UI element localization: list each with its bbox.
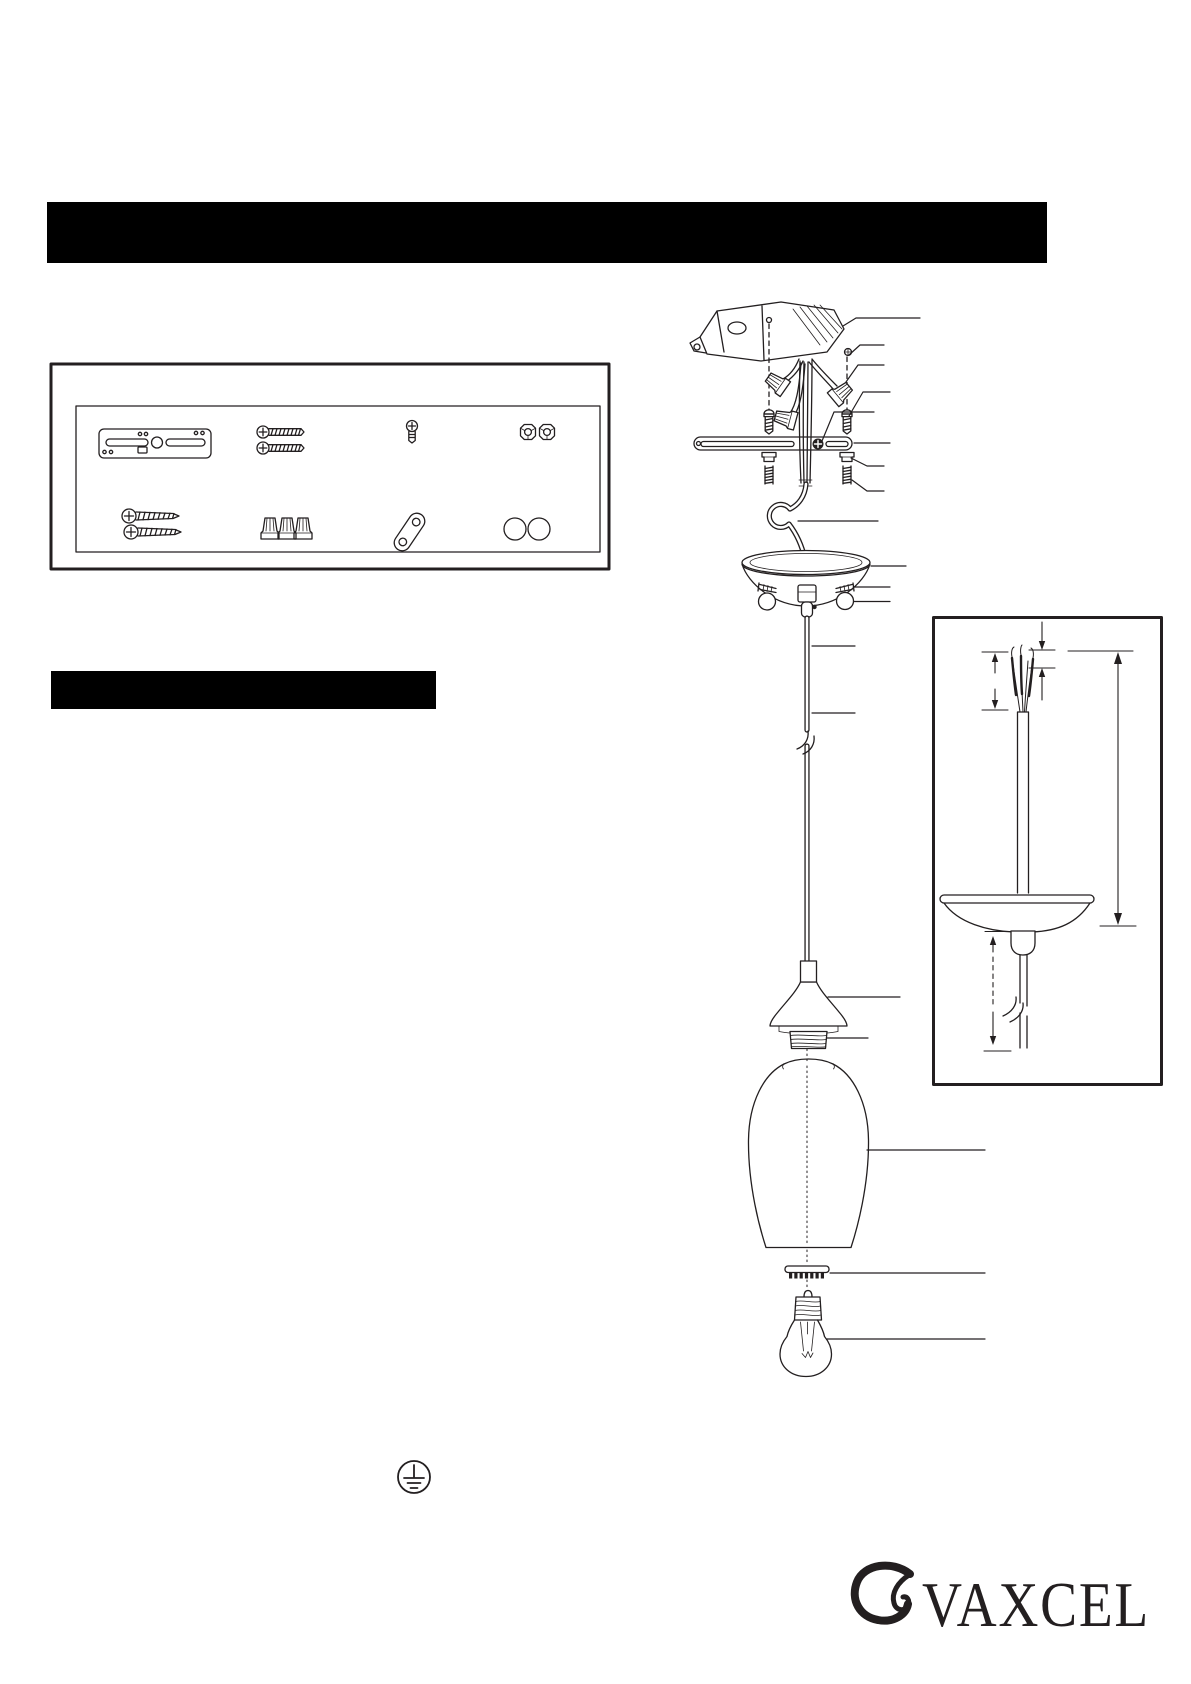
installation-diagram — [690, 302, 985, 1377]
mounting-strap-icon — [99, 429, 211, 458]
leader-lines — [798, 318, 985, 1339]
hex-cap-nut-icons — [762, 453, 854, 462]
wire-nuts-icon — [261, 518, 312, 539]
ground-screw-icon — [407, 421, 418, 444]
ground-symbol-icon — [398, 1461, 430, 1493]
vaxcel-swoosh-icon — [855, 1566, 910, 1621]
brand-name: VAXCEL — [922, 1569, 1150, 1640]
hex-nuts-icon — [521, 425, 555, 440]
package-contents-box — [51, 364, 609, 569]
inset-cord-below — [1003, 955, 1027, 1048]
stripped-cord-icon — [1012, 645, 1034, 893]
mounting-screw-left-icon — [764, 410, 774, 434]
pendant-cord — [797, 618, 814, 961]
glass-shade-icon — [748, 1059, 868, 1248]
wire-nut-icons — [763, 370, 855, 430]
manual-page: VAXCEL — [0, 0, 1191, 1684]
machine-screws-icon — [257, 426, 304, 454]
light-bulb-icon — [780, 1291, 832, 1377]
cord-grip-icon — [798, 585, 817, 617]
ground-link-icon — [391, 510, 428, 554]
threaded-socket-icon — [790, 1032, 827, 1049]
outlet-box-icon — [690, 302, 852, 361]
inset-canopy-icon — [940, 895, 1094, 955]
crossbar-icon — [694, 437, 852, 450]
socket-ring-icon — [785, 1266, 829, 1279]
threaded-nipple-icons — [765, 466, 851, 484]
dimension-arrows — [982, 622, 1136, 1051]
wiring-detail-inset — [934, 618, 1162, 1085]
brand-logo: VAXCEL — [855, 1566, 1150, 1640]
inset-border — [934, 618, 1162, 1085]
finial-balls-icon — [504, 518, 550, 540]
line-art: VAXCEL — [0, 0, 1191, 1684]
wood-screws-icon — [122, 509, 181, 539]
